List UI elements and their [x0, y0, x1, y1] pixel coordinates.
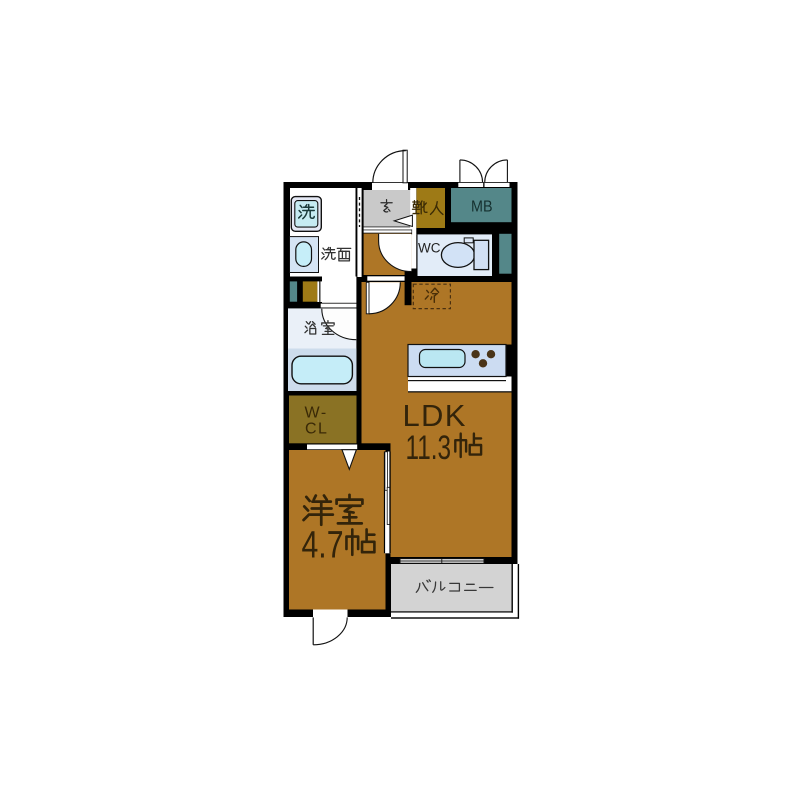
svg-text:11.3: 11.3: [406, 429, 452, 467]
svg-text:MB: MB: [471, 198, 493, 215]
svg-text:WC: WC: [418, 240, 441, 255]
svg-text:LDK: LDK: [403, 398, 467, 433]
svg-text:4.7: 4.7: [302, 525, 344, 567]
svg-text:CL: CL: [305, 421, 328, 438]
svg-text:W-: W-: [305, 405, 328, 422]
